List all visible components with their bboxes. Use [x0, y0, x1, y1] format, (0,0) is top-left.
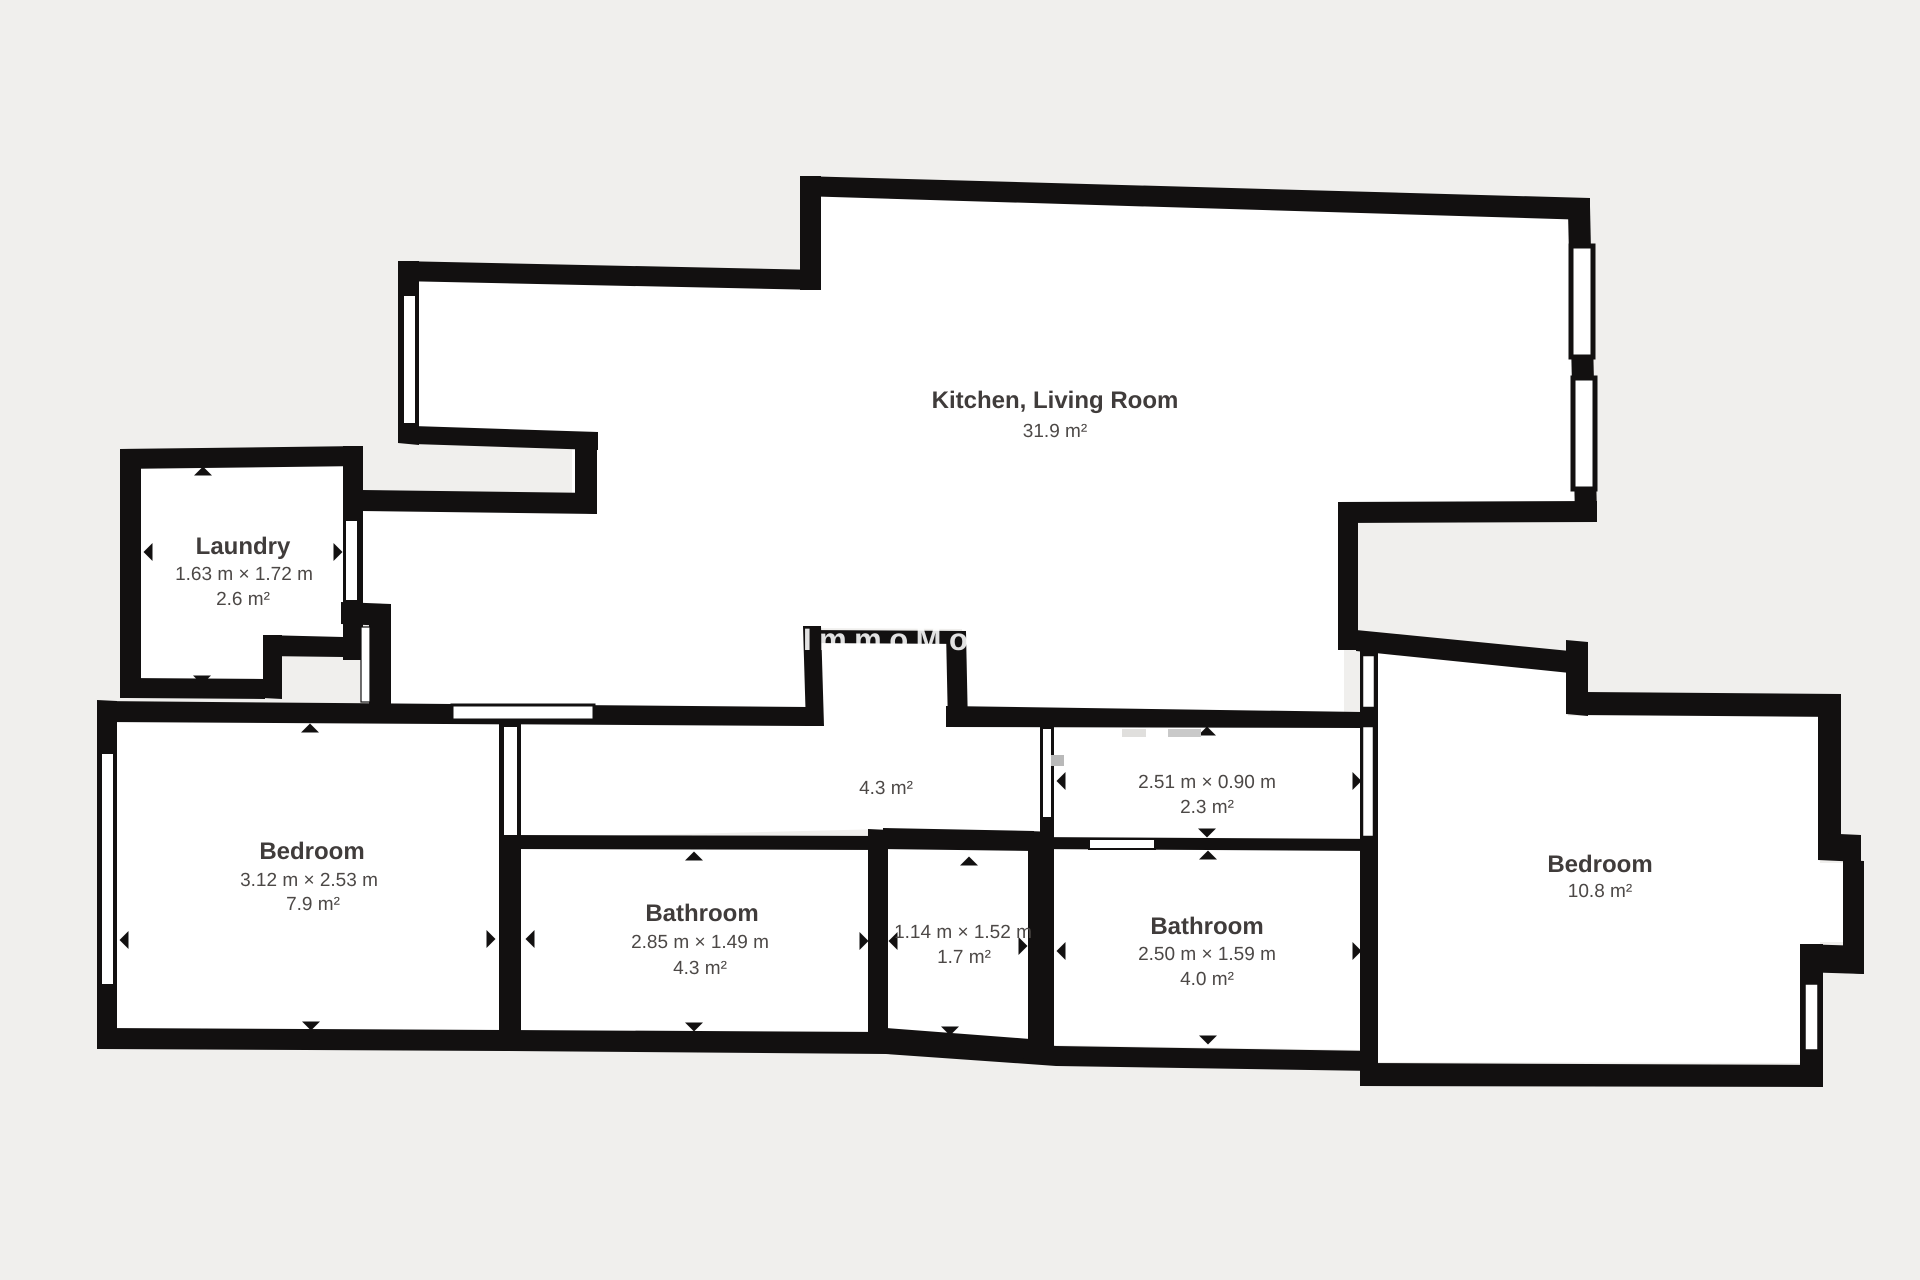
- svg-text:7.9 m²: 7.9 m²: [286, 894, 340, 915]
- svg-text:1.63 m × 1.72 m: 1.63 m × 1.72 m: [175, 564, 313, 585]
- svg-text:ImmoMo: ImmoMo: [803, 622, 975, 657]
- svg-text:3.12 m × 2.53 m: 3.12 m × 2.53 m: [240, 870, 378, 891]
- svg-text:2.85 m × 1.49 m: 2.85 m × 1.49 m: [631, 932, 769, 953]
- svg-text:2.6 m²: 2.6 m²: [216, 589, 270, 610]
- svg-text:31.9 m²: 31.9 m²: [1023, 421, 1087, 442]
- svg-text:2.3 m²: 2.3 m²: [1180, 797, 1234, 818]
- svg-text:Kitchen, Living Room: Kitchen, Living Room: [932, 387, 1179, 414]
- svg-text:Bathroom: Bathroom: [645, 900, 758, 927]
- svg-text:Bedroom: Bedroom: [259, 838, 364, 865]
- svg-text:Bathroom: Bathroom: [1150, 913, 1263, 940]
- svg-text:1.7 m²: 1.7 m²: [937, 947, 991, 968]
- svg-text:Bedroom: Bedroom: [1547, 851, 1652, 878]
- svg-text:2.50 m × 1.59 m: 2.50 m × 1.59 m: [1138, 944, 1276, 965]
- svg-text:2.51 m × 0.90 m: 2.51 m × 0.90 m: [1138, 772, 1276, 793]
- svg-text:4.0 m²: 4.0 m²: [1180, 969, 1234, 990]
- svg-text:1.14 m × 1.52 m: 1.14 m × 1.52 m: [894, 922, 1032, 943]
- svg-text:4.3 m²: 4.3 m²: [859, 778, 913, 799]
- svg-text:Laundry: Laundry: [196, 533, 291, 560]
- svg-text:4.3 m²: 4.3 m²: [673, 958, 727, 979]
- svg-text:10.8 m²: 10.8 m²: [1568, 881, 1632, 902]
